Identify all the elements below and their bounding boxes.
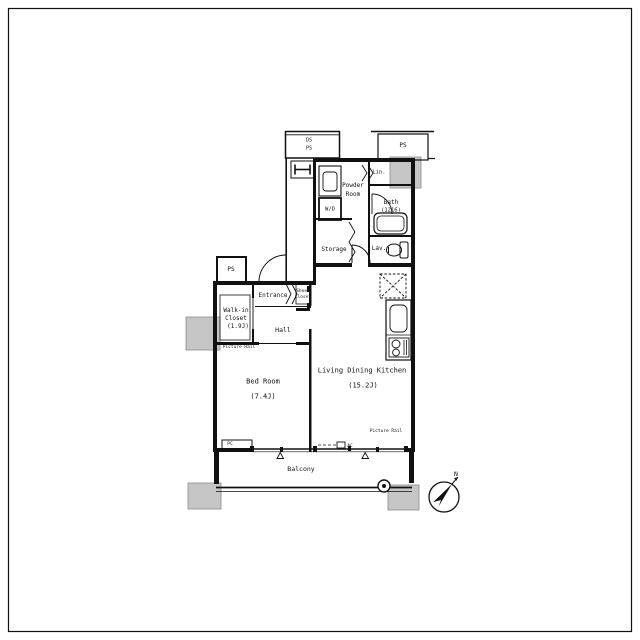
label-walk-in-closet-2: Closet bbox=[225, 316, 247, 322]
floor-plan: DS PS PS Lin. Powder Room W/D Bath (1216… bbox=[0, 0, 640, 640]
entrance-door bbox=[259, 255, 286, 281]
label-linen: Lin. bbox=[372, 170, 385, 176]
label-entrance: Entrance bbox=[259, 293, 288, 299]
label-duct-space: DS bbox=[306, 139, 312, 144]
floor-plan-geometry bbox=[0, 0, 640, 640]
label-ldk-size: (15.2J) bbox=[348, 383, 378, 390]
label-walk-in-closet-size: (1.9J) bbox=[227, 324, 249, 330]
label-washer-dryer: W/D bbox=[325, 207, 335, 213]
label-bed-room: Bed Room bbox=[246, 379, 280, 386]
label-pipe-space-top-right: PS bbox=[399, 143, 406, 149]
label-bath-size: (1216) bbox=[381, 208, 401, 214]
balcony-drain-icon bbox=[378, 480, 390, 492]
ac-sleeve-box bbox=[337, 442, 345, 448]
label-balcony: Balcony bbox=[287, 466, 314, 473]
label-bed-room-size: (7.4J) bbox=[250, 393, 275, 400]
label-ldk: Living Dining Kitchen bbox=[318, 368, 407, 375]
linen-door-left bbox=[362, 165, 367, 181]
i-beam-icon bbox=[295, 165, 310, 175]
bathtub bbox=[374, 213, 407, 234]
label-walk-in-closet-1: Walk-in bbox=[223, 308, 248, 314]
windows bbox=[252, 449, 408, 452]
label-pipe-space-shaft: PS bbox=[306, 146, 312, 151]
label-lavatory: Lav. bbox=[372, 246, 386, 252]
balcony-triangle-markers bbox=[277, 453, 369, 459]
label-pipe-space-entrance: PS bbox=[227, 267, 234, 273]
label-hall: Hall bbox=[275, 327, 291, 334]
washroom-door bbox=[352, 245, 370, 263]
label-counter: PC bbox=[227, 442, 232, 447]
label-storage: Storage bbox=[321, 247, 346, 253]
label-picture-rail-bedroom: Picture Rail bbox=[223, 346, 256, 351]
compass-icon bbox=[429, 477, 459, 512]
label-air-conditioner: AC bbox=[347, 444, 352, 449]
label-bath: Bath bbox=[384, 200, 398, 206]
refrigerator-space bbox=[380, 274, 406, 298]
toilet bbox=[387, 242, 409, 258]
column-bottom-right bbox=[388, 485, 419, 510]
image-border bbox=[9, 9, 632, 632]
kitchen-counter bbox=[386, 300, 411, 360]
label-compass-north: N bbox=[454, 471, 458, 478]
vanity-sink bbox=[319, 166, 341, 196]
kitchen-sink bbox=[390, 305, 407, 332]
label-powder-room-1: Powder bbox=[342, 183, 364, 189]
open-door-leaf bbox=[296, 308, 310, 311]
label-picture-rail-ldk: Picture Rail bbox=[370, 429, 403, 434]
label-powder-room-2: Room bbox=[346, 192, 360, 198]
label-shoes-closet-2: Closet bbox=[295, 295, 311, 300]
